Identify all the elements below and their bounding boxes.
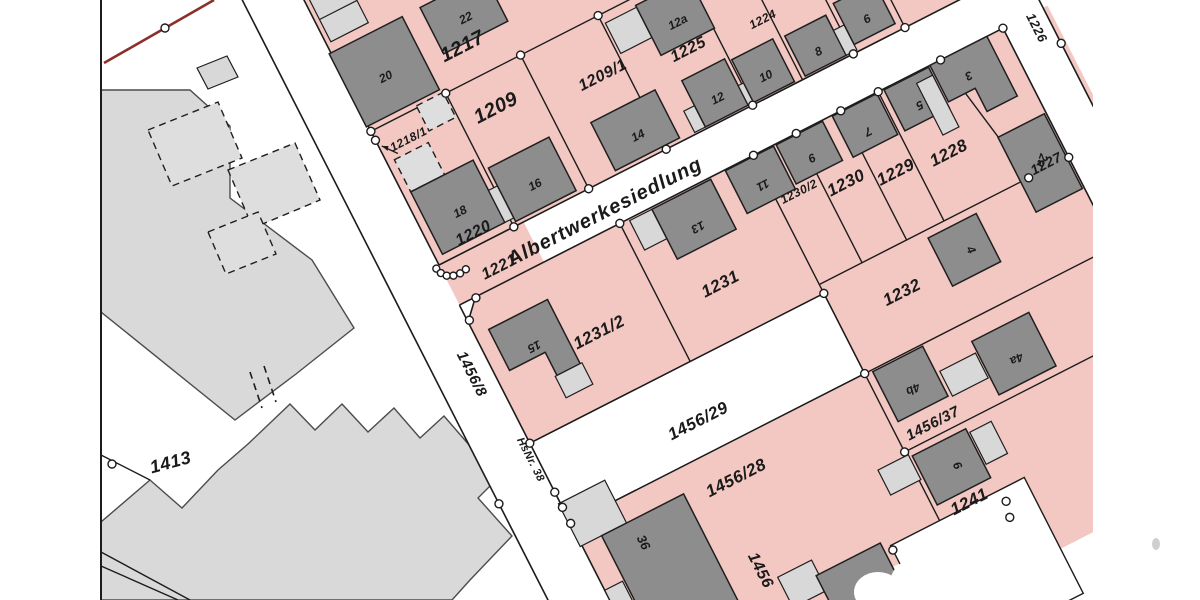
- map-margin-left: [0, 0, 101, 600]
- map-canvas: 1413: [0, 0, 1200, 600]
- boundary-node: [161, 24, 169, 32]
- map-margin-right: [1093, 0, 1200, 600]
- margin-speck: [1152, 538, 1160, 550]
- cadastral-map: 1413: [0, 0, 1200, 600]
- boundary-node: [108, 460, 116, 468]
